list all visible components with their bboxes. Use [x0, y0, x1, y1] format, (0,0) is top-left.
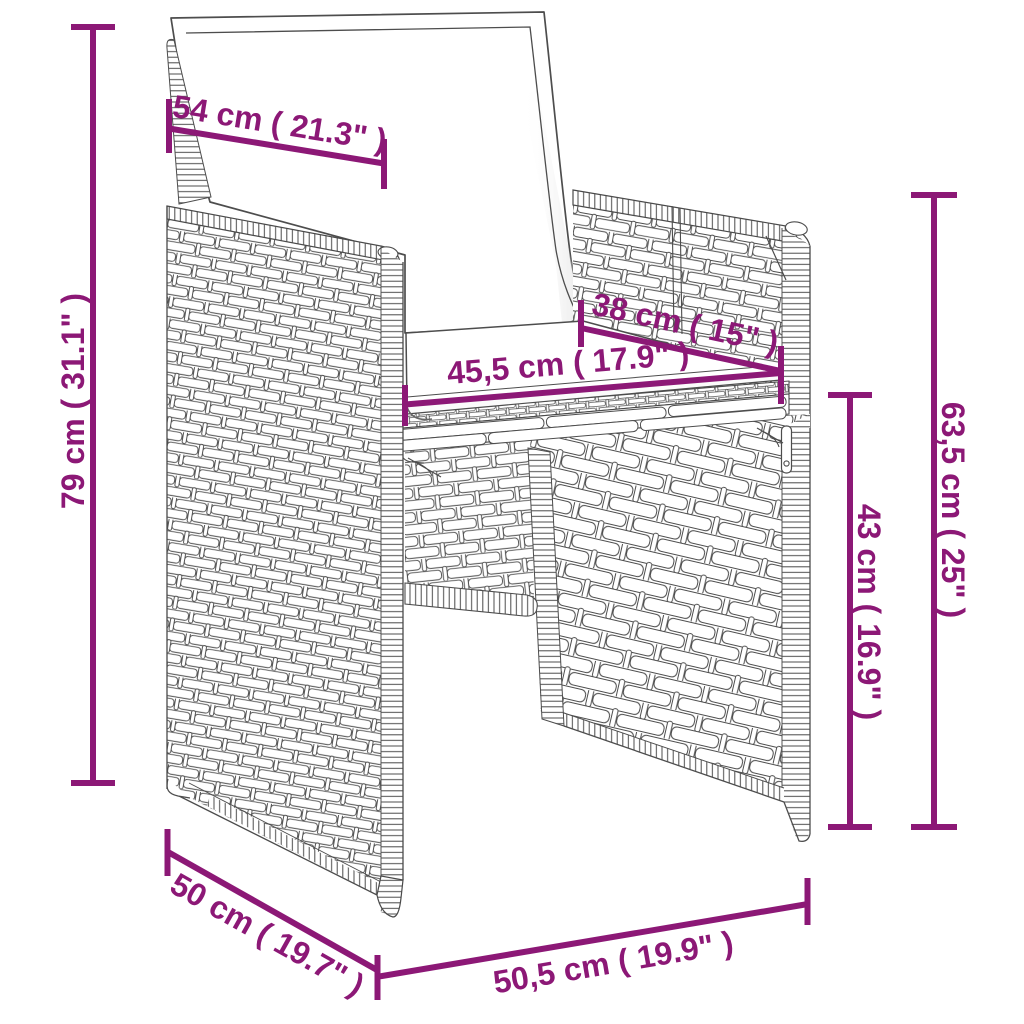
svg-text:50 cm ( 19.7" ): 50 cm ( 19.7" )	[164, 866, 370, 1003]
svg-text:43 cm ( 16.9" ): 43 cm ( 16.9" )	[851, 504, 887, 720]
svg-text:63,5 cm ( 25" ): 63,5 cm ( 25" )	[935, 402, 971, 618]
svg-text:79 cm ( 31.1" ): 79 cm ( 31.1" )	[55, 293, 91, 509]
